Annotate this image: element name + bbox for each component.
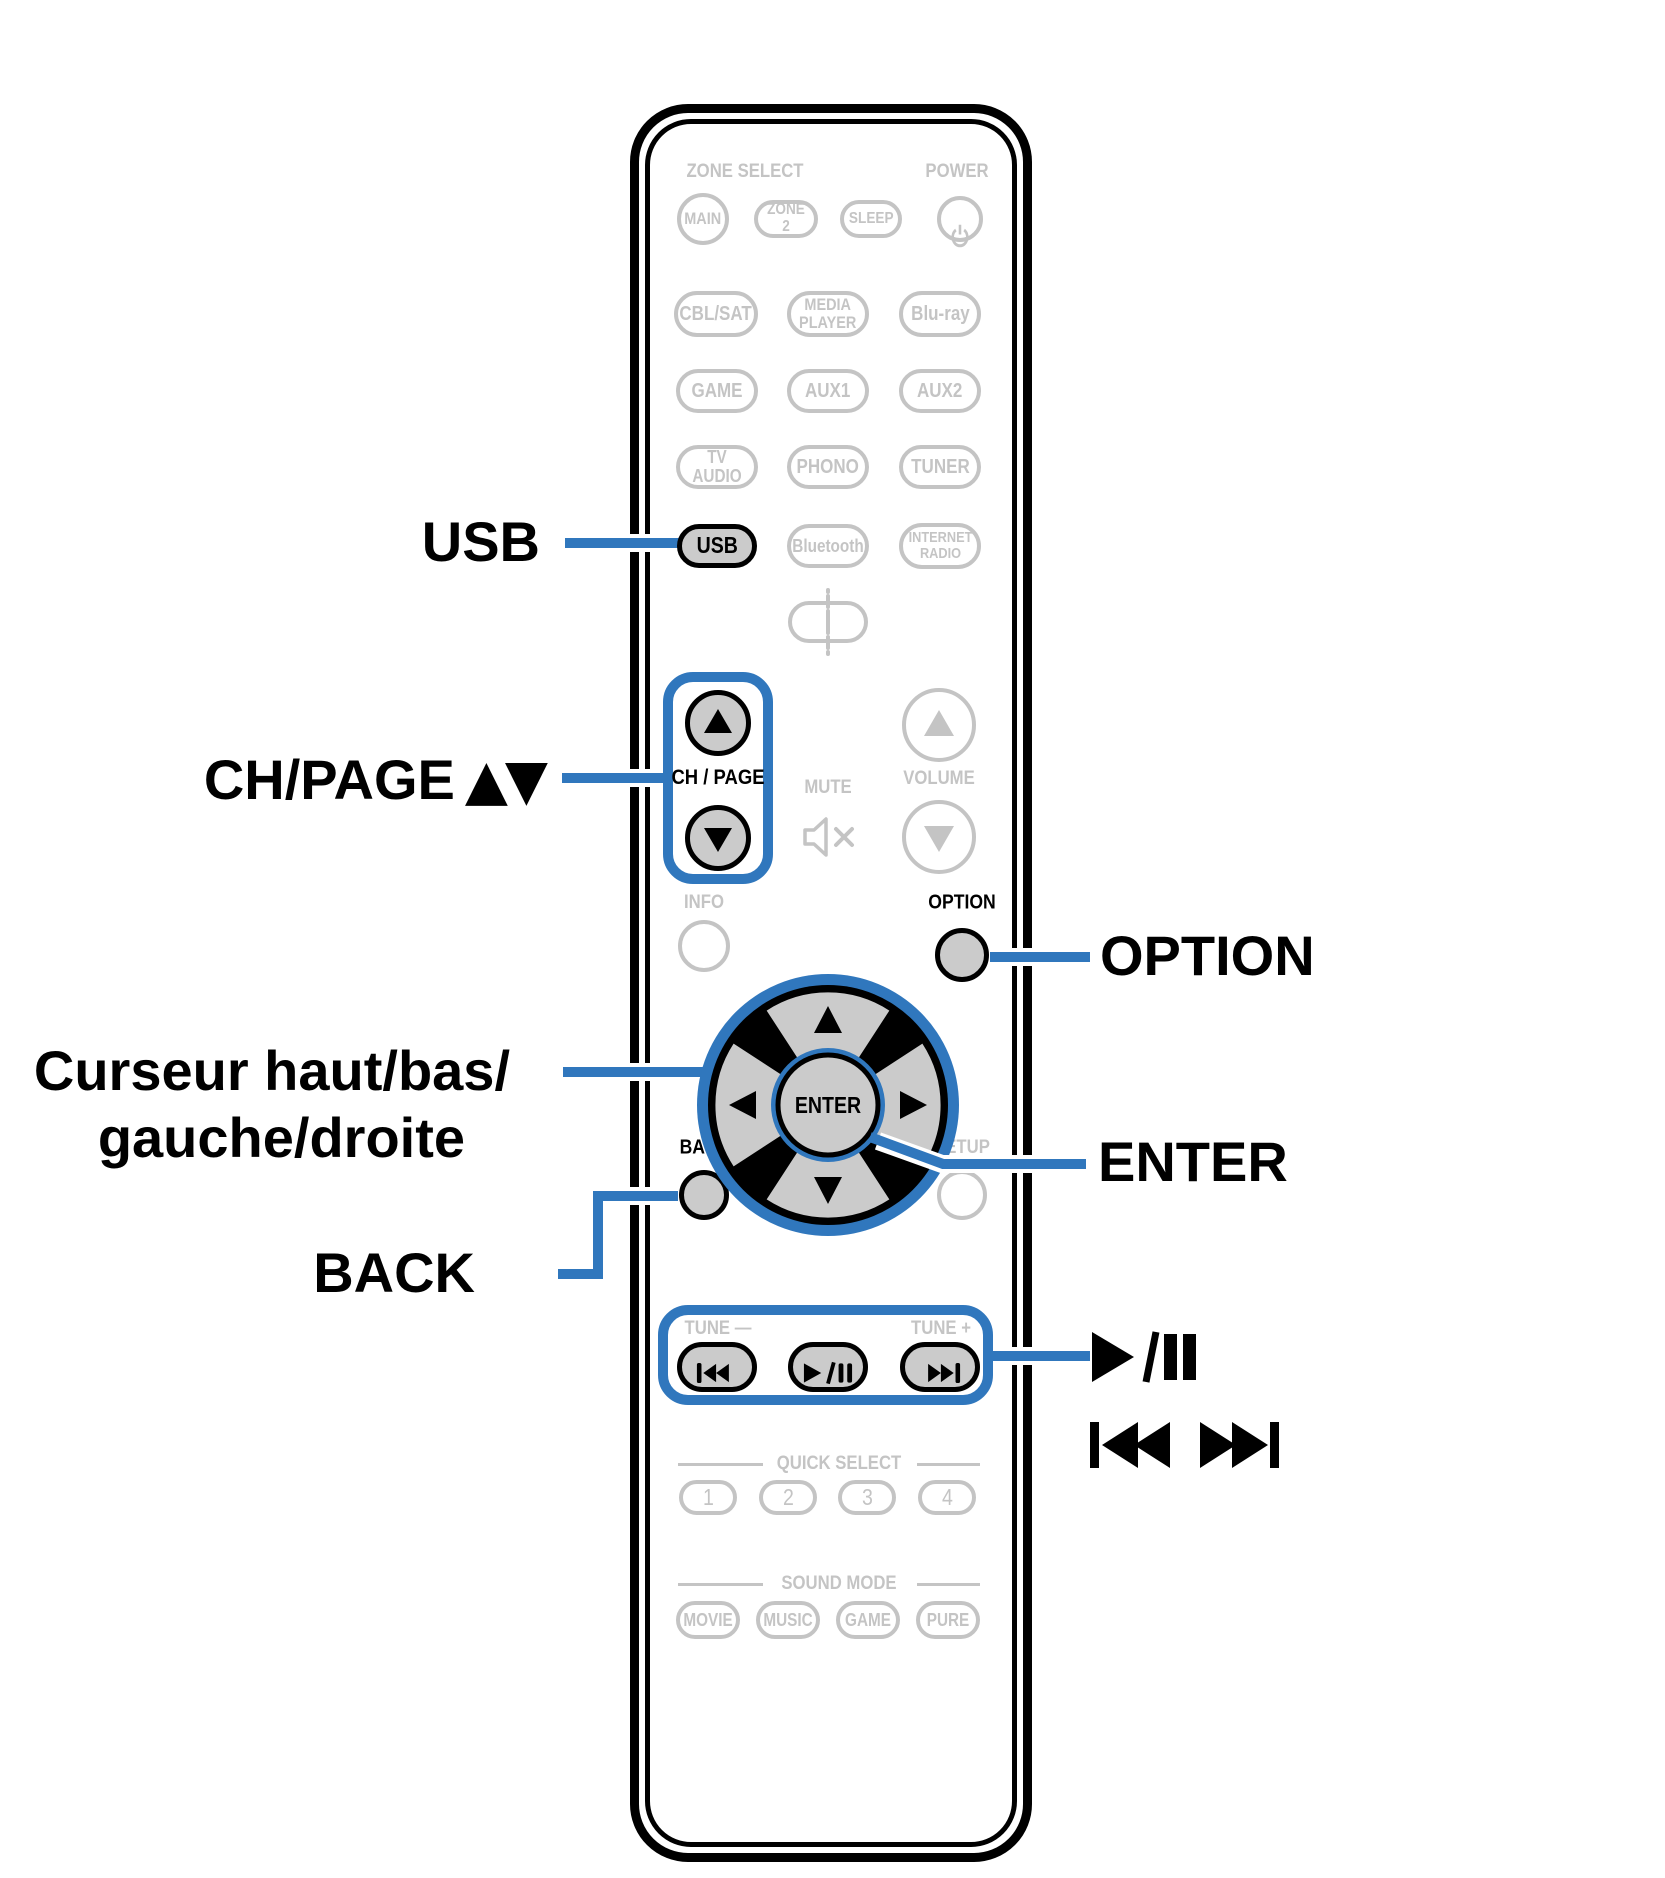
play-pause-icon: [802, 1344, 854, 1389]
skip-back-button: [677, 1342, 757, 1392]
cursor-callout-label: Curseur haut/bas/ gauche/droite: [34, 1037, 510, 1171]
cursor-up-button: [782, 1006, 874, 1035]
quick-select-1-button: 1: [679, 1480, 737, 1515]
zone-select-label: ZONE SELECT: [678, 161, 811, 183]
channel-page-down-button: [685, 805, 751, 871]
cursor-down-button: [782, 1176, 874, 1205]
quick-select-3-button: 3: [838, 1480, 896, 1515]
up-down-arrows-icon: ▲▼: [465, 748, 545, 813]
mute-button: [800, 812, 856, 867]
volume-up-button: [902, 688, 976, 762]
blu-ray-button: Blu-ray: [899, 291, 981, 337]
volume-down-button: [902, 800, 976, 874]
ch-page-printed-label: CH / PAGE: [665, 766, 771, 790]
manual-figure-remote-control: ZONE SELECT POWER MAIN ZONE 2 SLEEP CBL/…: [0, 0, 1665, 1878]
power-icon: [947, 204, 973, 234]
skip-back-forward-callout-icon: [1090, 1421, 1305, 1474]
quick-select-4-button: 4: [918, 1480, 976, 1515]
game-button: GAME: [676, 369, 758, 413]
play-pause-button: [788, 1342, 868, 1392]
phono-button: PHONO: [787, 445, 869, 489]
sound-mode-divider-left: [678, 1583, 763, 1586]
cursor-pad: ENTER: [688, 965, 968, 1245]
power-label: POWER: [921, 161, 993, 183]
volume-label: VOLUME: [898, 768, 979, 790]
sound-mode-game-button: GAME: [836, 1601, 900, 1639]
info-label: INFO: [681, 892, 726, 914]
power-button: [937, 196, 983, 242]
cursor-callout-line1: Curseur haut/bas/: [34, 1037, 510, 1104]
quick-select-divider-left: [678, 1463, 763, 1466]
back-callout-label: BACK: [313, 1245, 475, 1301]
zone2-button: ZONE 2: [754, 200, 818, 238]
cursor-right-button: [899, 1059, 928, 1151]
main-button: MAIN: [677, 193, 729, 245]
skip-back-icon: [696, 1344, 738, 1389]
sound-mode-label: SOUND MODE: [774, 1573, 905, 1595]
quick-select-divider-right: [917, 1463, 980, 1466]
enter-callout-label: ENTER: [1098, 1134, 1288, 1190]
skip-forward-icon: [919, 1344, 961, 1389]
sleep-button: SLEEP: [840, 200, 902, 238]
bluetooth-button: Bluetooth: [787, 524, 869, 568]
quick-select-label: QUICK SELECT: [768, 1453, 909, 1475]
arrow-down-icon: [704, 828, 732, 852]
arrow-down-icon: [924, 826, 954, 852]
enter-button-label: ENTER: [795, 1093, 861, 1119]
sound-mode-divider-right: [917, 1583, 980, 1586]
skip-forward-button: [900, 1342, 980, 1392]
mute-label: MUTE: [801, 777, 855, 799]
internet-radio-button: INTERNET RADIO: [899, 523, 981, 569]
cbl-sat-button: CBL/SAT: [674, 291, 758, 337]
option-printed-label: OPTION: [924, 892, 1001, 915]
quick-select-2-button: 2: [759, 1480, 817, 1515]
media-player-button: MEDIA PLAYER: [787, 291, 869, 337]
play-pause-callout-icon: [1092, 1331, 1198, 1388]
arrow-up-icon: [924, 710, 954, 736]
usb-callout-label: USB: [422, 514, 540, 570]
cursor-left-button: [729, 1059, 758, 1151]
sound-wave-icon: [826, 571, 830, 672]
sound-mode-music-button: MUSIC: [756, 1601, 820, 1639]
sound-mode-pure-button: PURE: [916, 1601, 980, 1639]
sound-wave-button: [788, 601, 868, 643]
aux2-button: AUX2: [899, 369, 981, 413]
option-callout-label: OPTION: [1100, 928, 1315, 984]
aux1-button: AUX1: [787, 369, 869, 413]
usb-button: USB: [677, 524, 757, 568]
tuner-button: TUNER: [899, 445, 981, 489]
sound-mode-movie-button: MOVIE: [676, 1601, 740, 1639]
channel-page-up-button: [685, 690, 751, 756]
cursor-callout-line2: gauche/droite: [34, 1104, 510, 1171]
tv-audio-button: TV AUDIO: [676, 445, 758, 489]
ch-page-callout-label: CH/PAGE▲▼: [204, 752, 545, 809]
speaker-mute-icon: [800, 849, 856, 866]
arrow-up-icon: [704, 709, 732, 733]
